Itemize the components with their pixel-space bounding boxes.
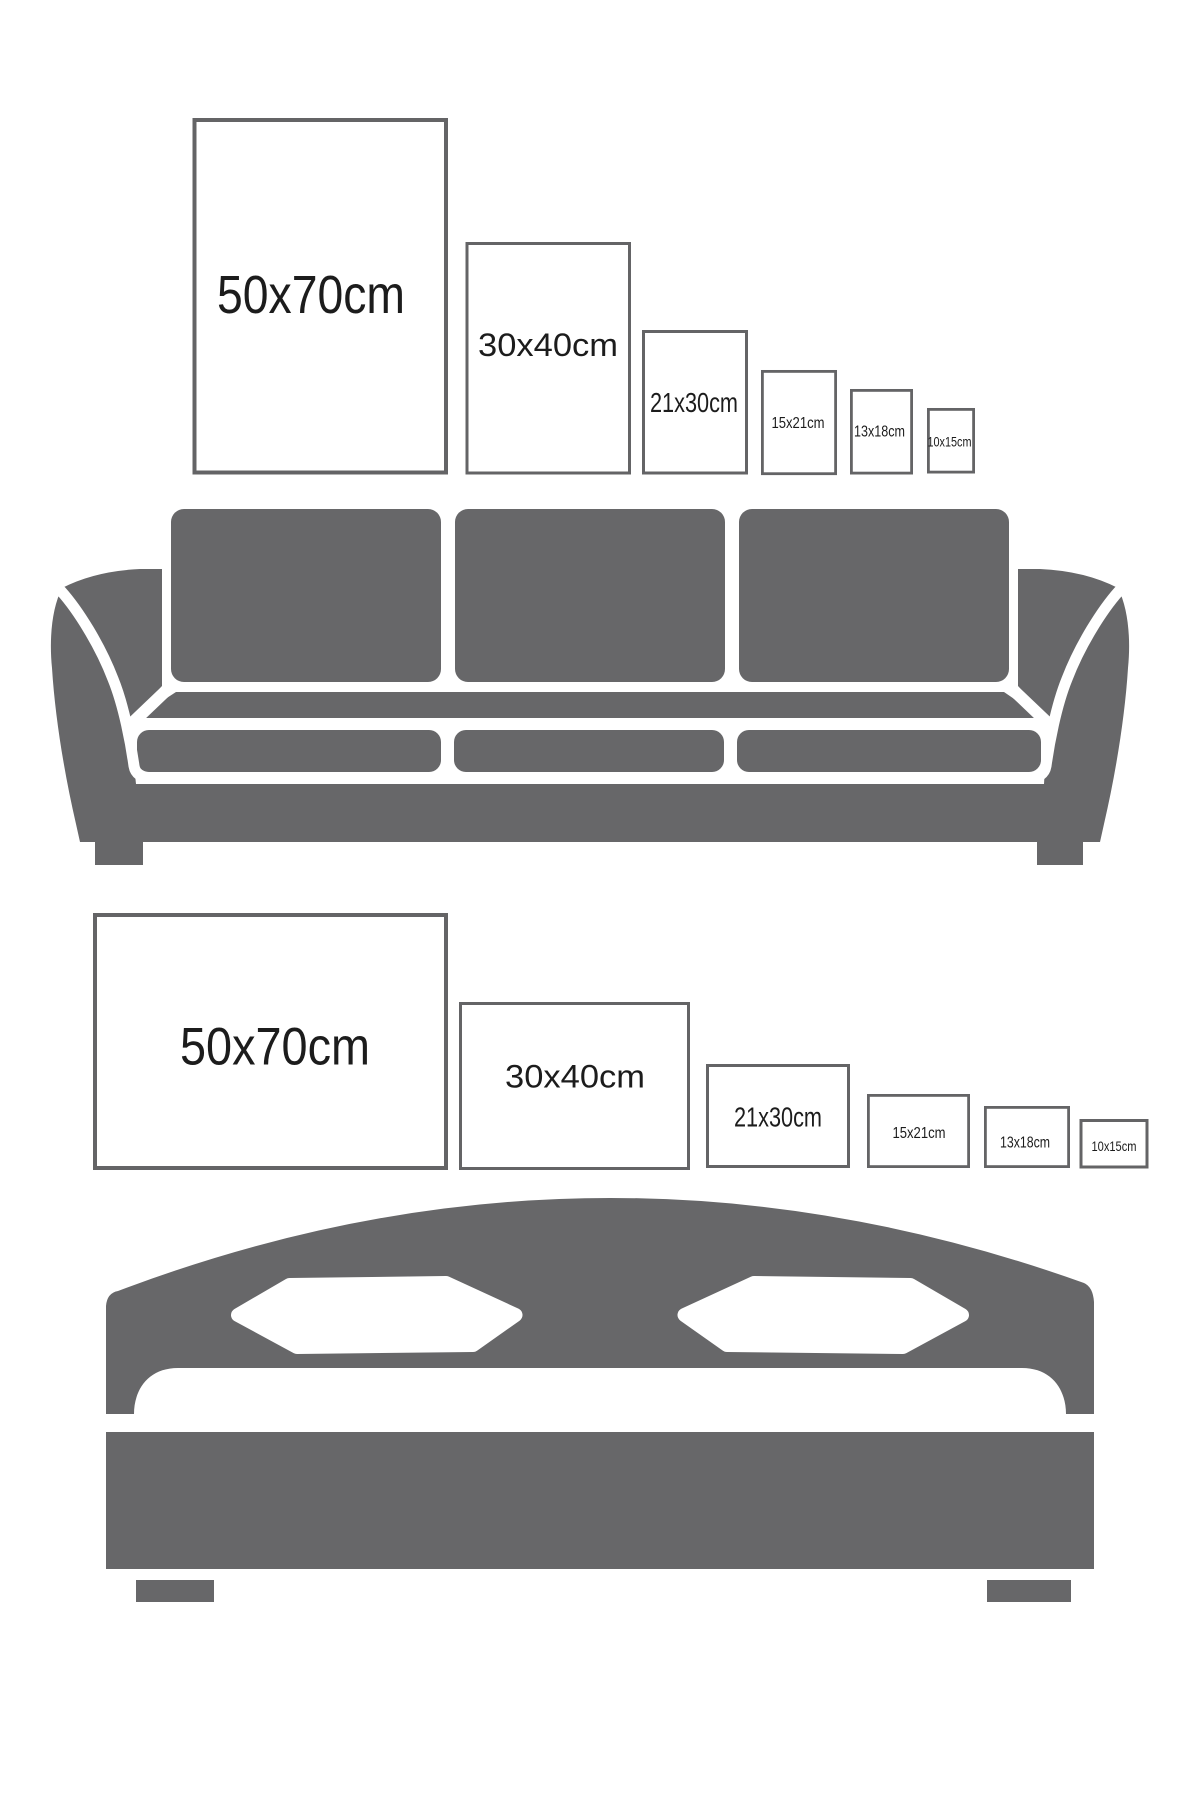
- svg-text:13x18cm: 13x18cm: [1000, 1135, 1050, 1152]
- svg-text:21x30cm: 21x30cm: [650, 387, 738, 418]
- svg-text:21x30cm: 21x30cm: [734, 1102, 822, 1133]
- svg-text:50x70cm: 50x70cm: [217, 265, 405, 325]
- svg-text:10x15cm: 10x15cm: [928, 435, 972, 450]
- svg-text:50x70cm: 50x70cm: [180, 1017, 370, 1076]
- svg-text:15x21cm: 15x21cm: [893, 1125, 946, 1142]
- svg-text:13x18cm: 13x18cm: [854, 424, 905, 441]
- svg-text:30x40cm: 30x40cm: [478, 327, 618, 363]
- svg-text:10x15cm: 10x15cm: [1092, 1139, 1137, 1154]
- svg-text:15x21cm: 15x21cm: [772, 415, 825, 432]
- svg-text:30x40cm: 30x40cm: [505, 1059, 645, 1095]
